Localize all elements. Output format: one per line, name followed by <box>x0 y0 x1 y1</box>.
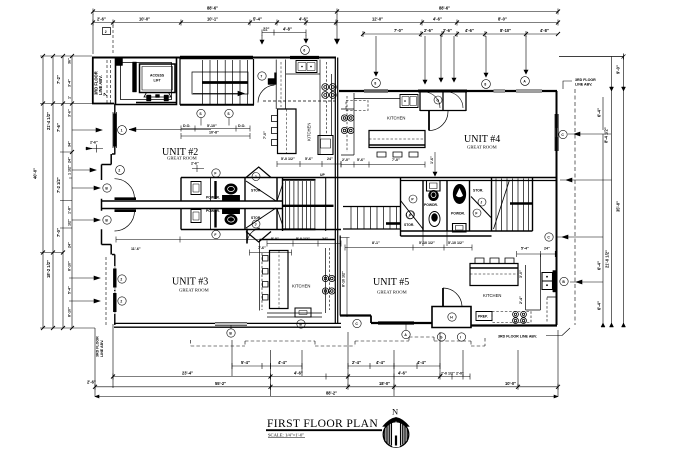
svg-text:3RD FLOOR: 3RD FLOOR <box>96 336 100 357</box>
svg-text:1 1/2": 1 1/2" <box>68 165 72 175</box>
svg-text:4'-4": 4'-4" <box>278 360 287 365</box>
svg-text:22": 22" <box>263 27 270 32</box>
svg-text:2'-4": 2'-4" <box>352 360 361 365</box>
svg-text:KITCHEN: KITCHEN <box>387 116 405 121</box>
svg-text:KITCHEN: KITCHEN <box>307 123 312 141</box>
svg-text:5'-10 1/2": 5'-10 1/2" <box>448 241 464 245</box>
svg-text:FIRST FLOOR PLAN: FIRST FLOOR PLAN <box>267 417 378 430</box>
svg-text:1'-6": 1'-6" <box>430 156 434 164</box>
svg-text:4'-6": 4'-6" <box>294 371 303 376</box>
svg-text:7'-0": 7'-0" <box>56 228 61 237</box>
svg-text:G: G <box>440 335 443 339</box>
svg-text:GREAT ROOM: GREAT ROOM <box>467 145 497 150</box>
svg-text:5'-6": 5'-6" <box>357 158 365 162</box>
svg-text:ACCESS: ACCESS <box>150 74 165 78</box>
svg-text:8'-10 1/2": 8'-10 1/2" <box>342 271 346 287</box>
svg-text:3'-6": 3'-6" <box>68 109 72 117</box>
svg-text:10'-1": 10'-1" <box>207 17 218 22</box>
svg-text:8'-10": 8'-10" <box>68 307 72 317</box>
svg-text:1'-8": 1'-8" <box>68 206 72 214</box>
svg-text:55'-2": 55'-2" <box>215 381 226 386</box>
svg-text:STOR.: STOR. <box>251 216 261 220</box>
svg-text:2'-4": 2'-4" <box>519 296 523 304</box>
svg-text:GREAT ROOM: GREAT ROOM <box>377 290 407 295</box>
svg-text:2'-6": 2'-6" <box>443 28 452 33</box>
svg-text:7'-0": 7'-0" <box>263 131 267 139</box>
svg-text:J: J <box>480 200 482 204</box>
svg-text:3'-0": 3'-0" <box>519 270 523 278</box>
svg-text:5'-6": 5'-6" <box>305 157 313 161</box>
svg-text:7'-0": 7'-0" <box>394 28 403 33</box>
svg-text:35'-0": 35'-0" <box>616 201 621 212</box>
svg-text:GREAT ROOM: GREAT ROOM <box>179 288 209 293</box>
svg-text:8'-10": 8'-10" <box>68 261 72 271</box>
svg-text:J: J <box>408 213 410 217</box>
svg-text:2'-6": 2'-6" <box>97 17 106 22</box>
svg-text:10'-8": 10'-8" <box>209 131 219 135</box>
svg-text:4'-4": 4'-4" <box>417 360 426 365</box>
svg-text:7'-2": 7'-2" <box>56 75 61 84</box>
svg-text:UNIT #5: UNIT #5 <box>373 277 409 288</box>
svg-text:24": 24" <box>544 247 550 251</box>
svg-text:LINE ABV.: LINE ABV. <box>100 340 104 357</box>
svg-text:2'-6": 2'-6" <box>191 162 199 166</box>
svg-text:2: 2 <box>120 299 122 303</box>
svg-text:GREAT ROOM: GREAT ROOM <box>167 156 197 161</box>
svg-text:STOR.: STOR. <box>404 223 414 227</box>
svg-text:40'-0": 40'-0" <box>33 168 38 179</box>
svg-text:34": 34" <box>68 141 72 147</box>
svg-text:4'-8": 4'-8" <box>540 28 549 33</box>
svg-text:J: J <box>255 175 257 179</box>
svg-text:2'-0": 2'-0" <box>456 372 464 376</box>
svg-text:18'-2 1/2": 18'-2 1/2" <box>46 260 51 278</box>
svg-text:6'-4": 6'-4" <box>597 261 602 270</box>
svg-text:21'-4 1/2": 21'-4 1/2" <box>46 112 51 130</box>
svg-text:23'-4": 23'-4" <box>182 371 193 376</box>
svg-text:4'-6": 4'-6" <box>433 17 442 22</box>
svg-text:8'-0": 8'-0" <box>498 17 507 22</box>
svg-text:POWDR.: POWDR. <box>424 203 438 207</box>
svg-text:5'-10 1/2": 5'-10 1/2" <box>419 241 435 245</box>
svg-text:3RD FLOOR LINE ABV.: 3RD FLOOR LINE ABV. <box>498 334 537 338</box>
svg-text:POWDR.: POWDR. <box>206 196 220 200</box>
svg-text:7'-0": 7'-0" <box>392 158 400 162</box>
svg-text:10'-0": 10'-0" <box>139 17 150 22</box>
svg-text:2: 2 <box>120 277 122 281</box>
svg-text:2'-6": 2'-6" <box>90 141 98 145</box>
svg-text:7'-6": 7'-6" <box>56 123 61 132</box>
svg-text:24": 24" <box>322 237 328 241</box>
svg-text:4'-6": 4'-6" <box>299 17 308 22</box>
svg-text:2'-6": 2'-6" <box>87 380 96 385</box>
svg-text:21'-0 1/2": 21'-0 1/2" <box>605 250 610 268</box>
svg-text:24": 24" <box>327 157 333 161</box>
svg-text:UNIT #4: UNIT #4 <box>464 134 500 145</box>
svg-text:D.O.: D.O. <box>238 124 245 128</box>
svg-text:KITCHEN: KITCHEN <box>483 293 501 298</box>
svg-text:5'-0 1/2": 5'-0 1/2" <box>296 237 310 241</box>
svg-text:3'-4": 3'-4" <box>68 79 72 87</box>
svg-text:LIFT: LIFT <box>154 79 162 83</box>
svg-text:I: I <box>460 335 461 339</box>
svg-text:2: 2 <box>118 168 120 172</box>
svg-text:24": 24" <box>68 242 72 248</box>
svg-text:F: F <box>214 171 216 175</box>
svg-text:88'-2": 88'-2" <box>326 391 337 396</box>
svg-text:4'-8": 4'-8" <box>283 27 292 32</box>
svg-text:LINE ABV.: LINE ABV. <box>575 83 592 87</box>
svg-text:8'-1": 8'-1" <box>372 241 380 245</box>
svg-text:6'-4": 6'-4" <box>597 108 602 117</box>
svg-text:8: 8 <box>484 82 486 86</box>
svg-text:2'-0 1/2": 2'-0 1/2" <box>441 372 455 376</box>
svg-text:5'-4": 5'-4" <box>241 360 250 365</box>
svg-text:5'-4": 5'-4" <box>253 17 262 22</box>
svg-text:5'-0": 5'-0" <box>271 237 279 241</box>
svg-text:F: F <box>475 211 477 215</box>
svg-text:88'-6": 88'-6" <box>439 6 450 11</box>
svg-text:J: J <box>255 222 257 226</box>
svg-text:UNIT #3: UNIT #3 <box>172 277 208 288</box>
svg-text:POWDR.: POWDR. <box>451 212 465 216</box>
svg-text:LINE ABV.: LINE ABV. <box>98 75 103 95</box>
svg-text:N: N <box>392 407 398 417</box>
svg-text:88'-6": 88'-6" <box>207 6 218 11</box>
svg-text:5'-4": 5'-4" <box>68 286 72 294</box>
svg-text:7: 7 <box>260 74 262 78</box>
svg-text:5'-0 1/2": 5'-0 1/2" <box>281 157 295 161</box>
svg-text:2'-6": 2'-6" <box>424 28 433 33</box>
svg-text:3RD FLOOR: 3RD FLOOR <box>575 78 596 82</box>
svg-text:4'-6": 4'-6" <box>465 28 474 33</box>
svg-text:SCALE: 1/4"=1'-0": SCALE: 1/4"=1'-0" <box>268 433 304 438</box>
svg-text:STOR.: STOR. <box>473 189 483 193</box>
svg-text:F: F <box>214 233 216 237</box>
svg-text:18'-0": 18'-0" <box>379 381 390 386</box>
svg-text:5'-10": 5'-10" <box>207 124 217 128</box>
svg-text:8: 8 <box>374 81 376 85</box>
svg-text:2'-0": 2'-0" <box>342 158 350 162</box>
svg-text:UP: UP <box>320 173 325 177</box>
svg-text:2: 2 <box>105 30 107 34</box>
svg-text:7'-2 1/2": 7'-2 1/2" <box>56 177 61 193</box>
svg-text:D.O.: D.O. <box>183 124 190 128</box>
svg-text:KITCHEN: KITCHEN <box>292 284 310 289</box>
svg-text:PREP.: PREP. <box>478 315 488 319</box>
svg-text:36": 36" <box>68 58 72 64</box>
svg-text:4'-4": 4'-4" <box>376 360 385 365</box>
svg-text:1: 1 <box>121 128 123 132</box>
svg-text:8'-10": 8'-10" <box>500 28 511 33</box>
svg-text:4'-6": 4'-6" <box>398 371 407 376</box>
svg-text:1': 1' <box>68 96 72 99</box>
svg-text:1/2": 1/2" <box>68 219 72 226</box>
svg-text:9'-0": 9'-0" <box>616 65 621 74</box>
svg-text:24": 24" <box>68 157 72 163</box>
svg-text:11'-6": 11'-6" <box>131 247 141 251</box>
svg-text:6: 6 <box>303 48 305 52</box>
svg-text:5'-4": 5'-4" <box>521 247 529 251</box>
svg-text:10'-0": 10'-0" <box>505 381 516 386</box>
svg-text:POWDR.: POWDR. <box>206 209 220 213</box>
svg-text:12'-0": 12'-0" <box>372 17 383 22</box>
svg-text:8'-4 1/2": 8'-4 1/2" <box>604 127 609 143</box>
svg-text:G: G <box>436 98 439 102</box>
svg-text:6'-4": 6'-4" <box>597 301 602 310</box>
